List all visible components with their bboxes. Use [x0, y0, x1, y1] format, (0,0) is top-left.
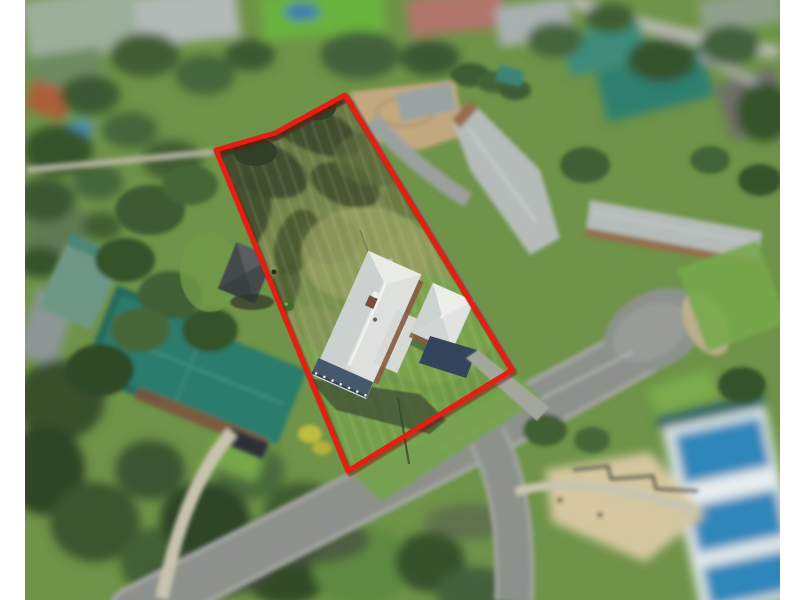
bollard-2 — [598, 513, 602, 517]
yellow-shrub-2 — [312, 441, 332, 455]
pool-top — [284, 4, 320, 20]
shed-shadow-west — [230, 294, 274, 310]
yellow-shrub-1 — [298, 425, 322, 443]
aerial-photo-frame — [0, 0, 800, 600]
tree-bl-2 — [115, 440, 185, 500]
bollard-1 — [558, 498, 562, 502]
aerial-photo — [0, 0, 800, 600]
small-dark-object — [272, 270, 277, 275]
shrub-highlight — [284, 302, 288, 306]
